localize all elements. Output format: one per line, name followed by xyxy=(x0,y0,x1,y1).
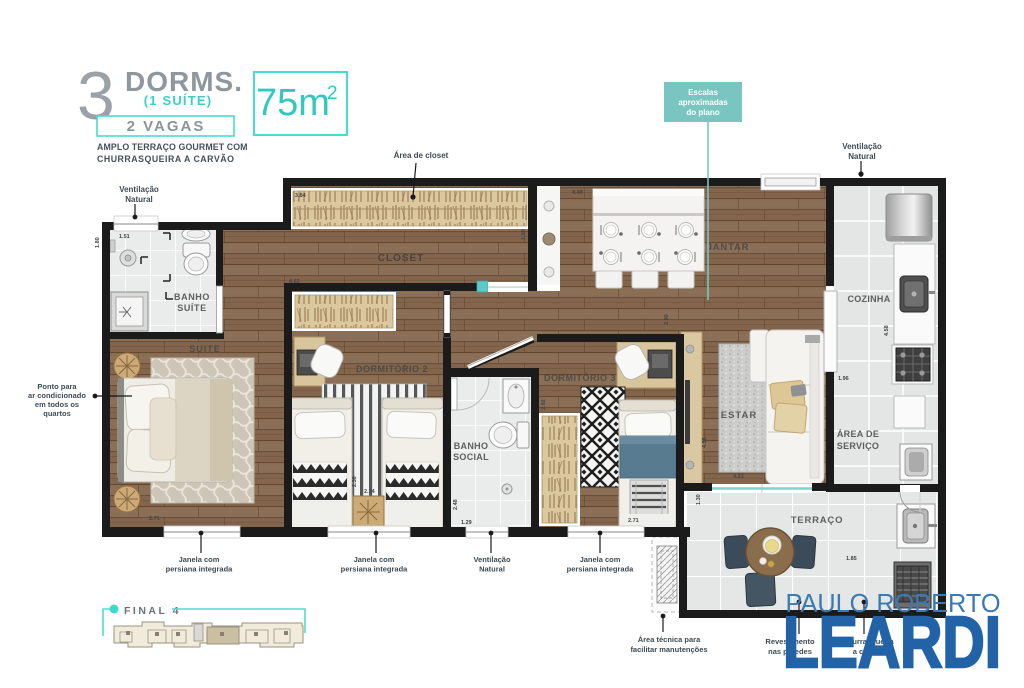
svg-text:3.84: 3.84 xyxy=(295,193,307,199)
svg-text:do plano: do plano xyxy=(686,108,719,117)
svg-text:Janela com: Janela com xyxy=(179,555,220,564)
svg-text:ESTAR: ESTAR xyxy=(721,410,758,421)
svg-text:CLOSET: CLOSET xyxy=(378,253,425,264)
svg-text:2.74: 2.74 xyxy=(364,489,376,495)
svg-text:Escalas: Escalas xyxy=(688,88,718,97)
svg-text:4.23: 4.23 xyxy=(733,474,744,480)
svg-text:Janela com: Janela com xyxy=(354,555,395,564)
svg-text:2.38: 2.38 xyxy=(352,476,358,487)
svg-text:4.58: 4.58 xyxy=(884,325,890,336)
svg-text:BANHO: BANHO xyxy=(454,441,489,451)
svg-text:LEARDI: LEARDI xyxy=(783,603,1001,683)
svg-text:Ventilação: Ventilação xyxy=(473,555,511,564)
svg-text:2 VAGAS: 2 VAGAS xyxy=(127,118,206,135)
svg-text:CHURRASQUEIRA A CARVÃO: CHURRASQUEIRA A CARVÃO xyxy=(97,154,234,164)
svg-text:Área de closet: Área de closet xyxy=(394,151,449,160)
svg-text:4.58: 4.58 xyxy=(702,437,708,448)
svg-text:1.30: 1.30 xyxy=(696,494,702,505)
svg-text:TERRAÇO: TERRAÇO xyxy=(791,515,844,526)
svg-text:Natural: Natural xyxy=(125,195,153,204)
svg-text:Ventilação: Ventilação xyxy=(119,185,159,194)
svg-text:em todos os: em todos os xyxy=(35,400,79,409)
svg-text:2.71: 2.71 xyxy=(149,516,160,522)
svg-text:DORMITÓRIO 2: DORMITÓRIO 2 xyxy=(356,363,428,374)
svg-text:SOCIAL: SOCIAL xyxy=(453,452,489,462)
svg-text:Natural: Natural xyxy=(848,152,876,161)
svg-text:1.51: 1.51 xyxy=(119,234,130,240)
svg-text:1.85: 1.85 xyxy=(846,556,857,562)
svg-text:SERVIÇO: SERVIÇO xyxy=(837,441,879,451)
svg-text:2.71: 2.71 xyxy=(628,518,639,524)
svg-text:JANTAR: JANTAR xyxy=(707,242,750,253)
svg-text:(1 SUÍTE): (1 SUÍTE) xyxy=(144,93,213,108)
svg-text:facilitar manutenções: facilitar manutenções xyxy=(630,645,707,654)
svg-text:2.02: 2.02 xyxy=(541,399,547,410)
svg-text:1.80: 1.80 xyxy=(95,237,101,248)
svg-text:Natural: Natural xyxy=(479,565,505,574)
svg-text:Área técnica para: Área técnica para xyxy=(638,635,701,644)
svg-text:DORMITÓRIO 3: DORMITÓRIO 3 xyxy=(544,372,616,383)
svg-text:quartos: quartos xyxy=(43,409,71,418)
svg-text:ar condicionado: ar condicionado xyxy=(28,391,86,400)
svg-text:Ponto para: Ponto para xyxy=(37,382,77,391)
svg-text:1.98: 1.98 xyxy=(521,229,527,240)
svg-text:1.96: 1.96 xyxy=(838,376,849,382)
svg-text:SUITE: SUITE xyxy=(189,344,221,354)
svg-text:1.29: 1.29 xyxy=(461,520,472,526)
svg-text:aproximadas: aproximadas xyxy=(678,98,728,107)
svg-text:2.90: 2.90 xyxy=(664,314,670,325)
svg-text:FINAL 4: FINAL 4 xyxy=(124,605,181,617)
svg-text:2.48: 2.48 xyxy=(453,499,459,510)
svg-text:COZINHA: COZINHA xyxy=(847,294,890,304)
svg-text:persiana integrada: persiana integrada xyxy=(567,565,635,574)
svg-text:persiana integrada: persiana integrada xyxy=(341,565,409,574)
svg-text:Janela com: Janela com xyxy=(580,555,621,564)
svg-text:2: 2 xyxy=(327,83,338,104)
svg-text:AMPLO TERRAÇO GOURMET COM: AMPLO TERRAÇO GOURMET COM xyxy=(97,142,248,152)
svg-text:75m: 75m xyxy=(256,82,330,124)
svg-text:Ventilação: Ventilação xyxy=(842,142,882,151)
svg-text:4.48: 4.48 xyxy=(572,190,583,196)
svg-text:persiana integrada: persiana integrada xyxy=(166,565,234,574)
svg-text:ÁREA DE: ÁREA DE xyxy=(837,429,879,439)
